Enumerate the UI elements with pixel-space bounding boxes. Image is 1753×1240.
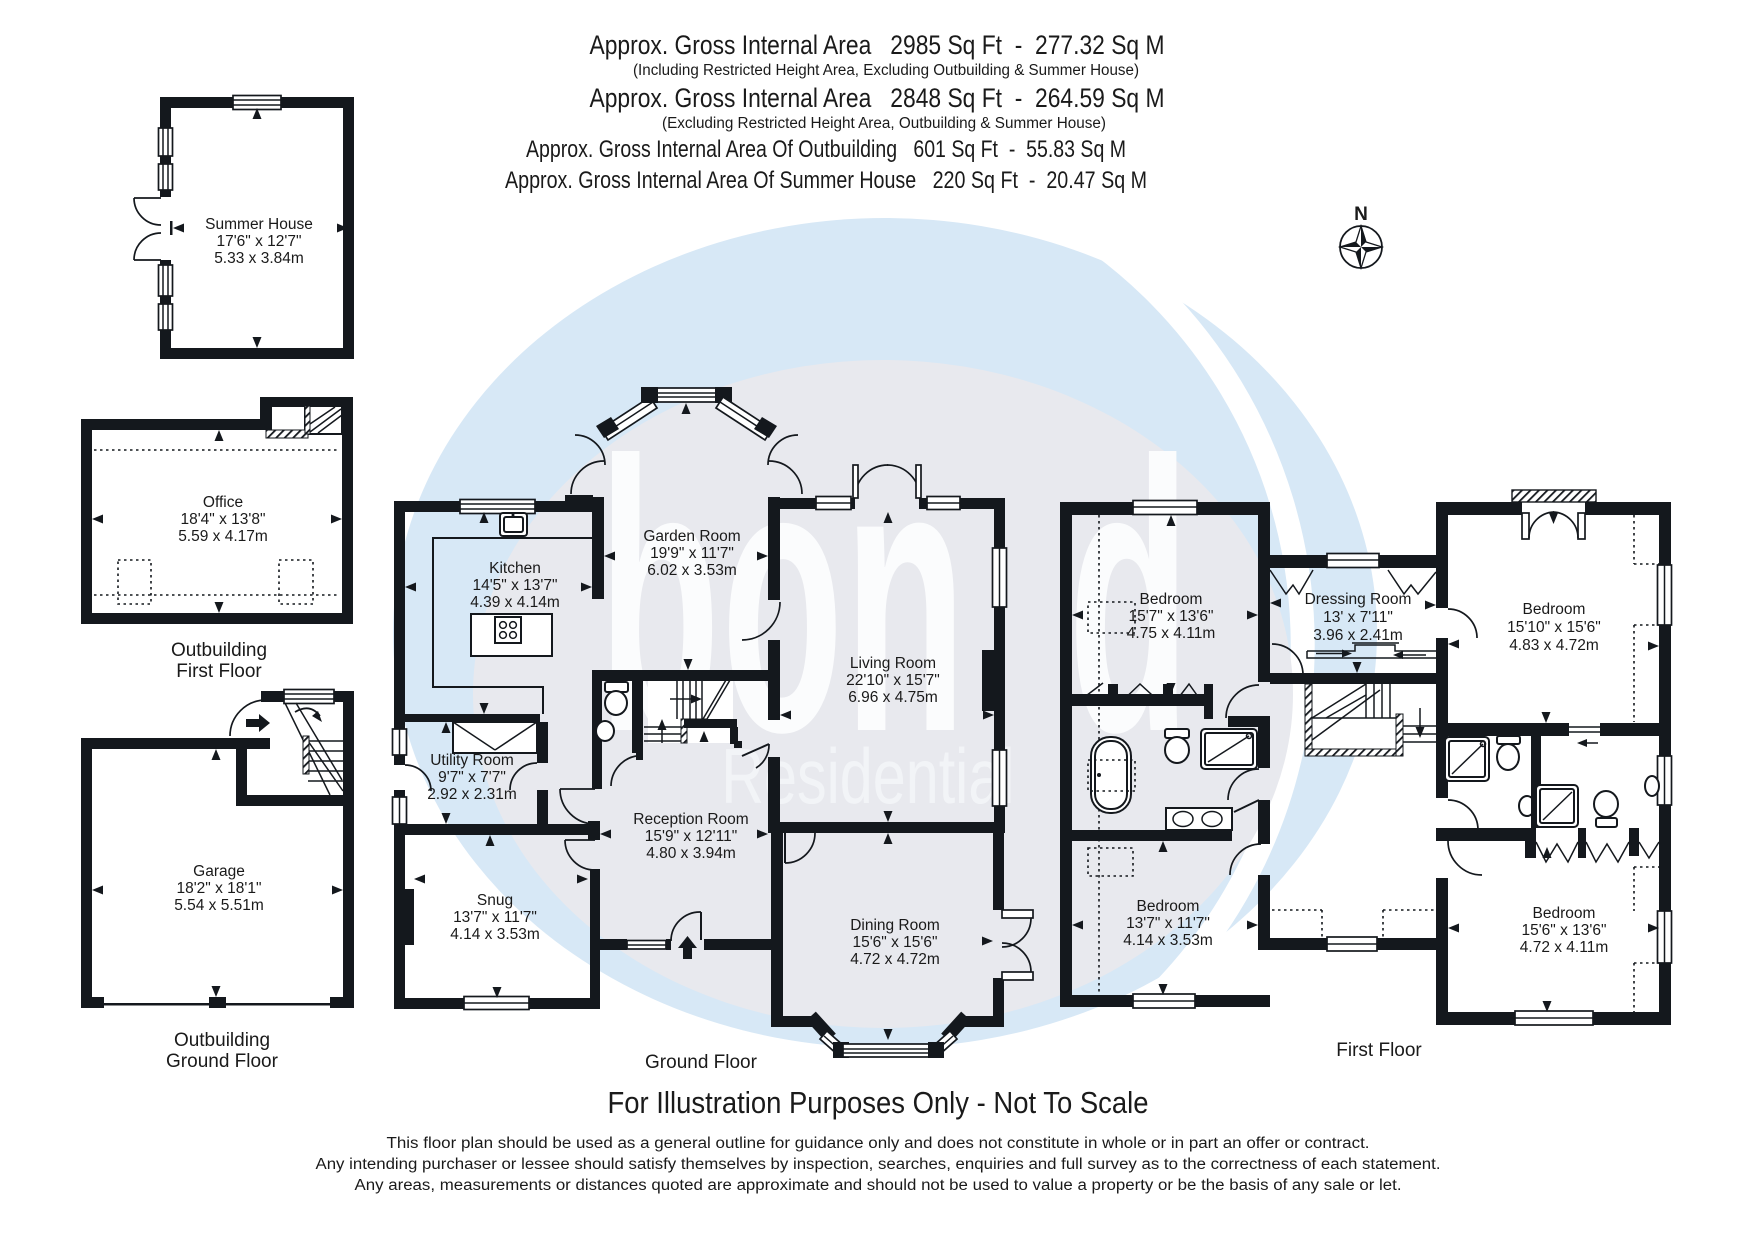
svg-text:15'9" x 12'11": 15'9" x 12'11": [645, 828, 737, 845]
svg-text:First Floor: First Floor: [1336, 1040, 1422, 1061]
svg-text:Summer House: Summer House: [205, 216, 313, 233]
svg-text:Garage: Garage: [193, 863, 245, 880]
svg-text:Ground Floor: Ground Floor: [645, 1052, 758, 1073]
svg-text:Bedroom: Bedroom: [1533, 905, 1596, 922]
svg-text:4.14 x 3.53m: 4.14 x 3.53m: [1123, 932, 1213, 949]
svg-text:14'5" x 13'7": 14'5" x 13'7": [472, 577, 557, 594]
svg-text:15'6" x 15'6": 15'6" x 15'6": [852, 934, 937, 951]
svg-text:19'9" x 11'7": 19'9" x 11'7": [650, 545, 734, 562]
svg-text:Bedroom: Bedroom: [1137, 898, 1200, 915]
svg-text:Living Room: Living Room: [850, 655, 936, 672]
svg-text:15'7" x 13'6": 15'7" x 13'6": [1128, 608, 1213, 625]
svg-text:4.80 x 3.94m: 4.80 x 3.94m: [646, 845, 736, 862]
svg-text:Approx. Gross Internal Area Of: Approx. Gross Internal Area Of Summer Ho…: [505, 167, 1147, 194]
svg-text:4.39 x 4.14m: 4.39 x 4.14m: [470, 594, 560, 611]
svg-text:4.72 x 4.72m: 4.72 x 4.72m: [850, 951, 940, 968]
svg-text:(Including Restricted Height A: (Including Restricted Height Area, Exclu…: [633, 62, 1139, 79]
svg-text:2.92 x 2.31m: 2.92 x 2.31m: [427, 786, 517, 803]
svg-text:Outbuilding: Outbuilding: [174, 1030, 270, 1051]
svg-text:Kitchen: Kitchen: [489, 560, 541, 577]
svg-text:Ground Floor: Ground Floor: [166, 1051, 279, 1072]
svg-text:4.83 x 4.72m: 4.83 x 4.72m: [1509, 637, 1599, 654]
svg-text:Dining Room: Dining Room: [850, 917, 940, 934]
svg-text:15'6" x 13'6": 15'6" x 13'6": [1521, 922, 1606, 939]
svg-text:Any areas, measurements or dis: Any areas, measurements or distances quo…: [355, 1177, 1402, 1194]
svg-text:Utility Room: Utility Room: [430, 752, 514, 769]
svg-text:13'7" x 11'7": 13'7" x 11'7": [1126, 915, 1210, 932]
svg-text:15'10" x 15'6": 15'10" x 15'6": [1507, 619, 1601, 636]
svg-text:13' x 7'11": 13' x 7'11": [1323, 609, 1393, 626]
svg-text:13'7" x 11'7": 13'7" x 11'7": [453, 909, 537, 926]
svg-text:b: b: [598, 382, 720, 812]
svg-text:Outbuilding: Outbuilding: [171, 640, 267, 661]
svg-text:Bedroom: Bedroom: [1523, 601, 1586, 618]
svg-text:5.33 x 3.84m: 5.33 x 3.84m: [214, 250, 304, 267]
svg-text:Reception Room: Reception Room: [633, 811, 748, 828]
svg-text:6.02 x 3.53m: 6.02 x 3.53m: [647, 562, 737, 579]
svg-text:18'2" x 18'1": 18'2" x 18'1": [176, 880, 261, 897]
svg-text:Approx. Gross Internal Area: Approx. Gross Internal Area 2985 Sq Ft -…: [590, 30, 1165, 60]
svg-text:Bedroom: Bedroom: [1140, 591, 1203, 608]
svg-text:Office: Office: [203, 494, 243, 511]
svg-text:Snug: Snug: [477, 892, 513, 909]
svg-text:18'4" x 13'8": 18'4" x 13'8": [180, 511, 265, 528]
svg-text:Dressing Room: Dressing Room: [1305, 591, 1412, 608]
svg-text:Approx. Gross Internal Area: Approx. Gross Internal Area 2848 Sq Ft -…: [590, 83, 1165, 113]
svg-text:Garden Room: Garden Room: [643, 528, 740, 545]
svg-text:This floor plan should be used: This floor plan should be used as a gene…: [387, 1135, 1370, 1152]
svg-text:5.54 x 5.51m: 5.54 x 5.51m: [174, 897, 264, 914]
svg-text:17'6" x 12'7": 17'6" x 12'7": [216, 233, 301, 250]
svg-text:For Illustration Purposes Only: For Illustration Purposes Only - Not To …: [608, 1085, 1149, 1120]
svg-text:4.14 x 3.53m: 4.14 x 3.53m: [450, 926, 540, 943]
svg-text:(Excluding Restricted Height A: (Excluding Restricted Height Area, Outbu…: [662, 115, 1106, 132]
svg-text:22'10" x 15'7": 22'10" x 15'7": [846, 672, 940, 689]
svg-text:Approx. Gross Internal Area Of: Approx. Gross Internal Area Of Outbuildi…: [526, 136, 1126, 163]
svg-text:6.96 x 4.75m: 6.96 x 4.75m: [848, 689, 938, 706]
svg-text:Any intending purchaser or les: Any intending purchaser or lessee should…: [316, 1156, 1441, 1173]
svg-text:3.96 x 2.41m: 3.96 x 2.41m: [1313, 627, 1403, 644]
svg-text:5.59 x 4.17m: 5.59 x 4.17m: [178, 528, 268, 545]
svg-text:First Floor: First Floor: [176, 661, 262, 682]
svg-text:9'7" x 7'7": 9'7" x 7'7": [438, 769, 506, 786]
svg-text:4.72 x 4.11m: 4.72 x 4.11m: [1520, 939, 1608, 956]
svg-text:4.75 x 4.11m: 4.75 x 4.11m: [1127, 625, 1215, 642]
svg-text:N: N: [1354, 204, 1368, 225]
